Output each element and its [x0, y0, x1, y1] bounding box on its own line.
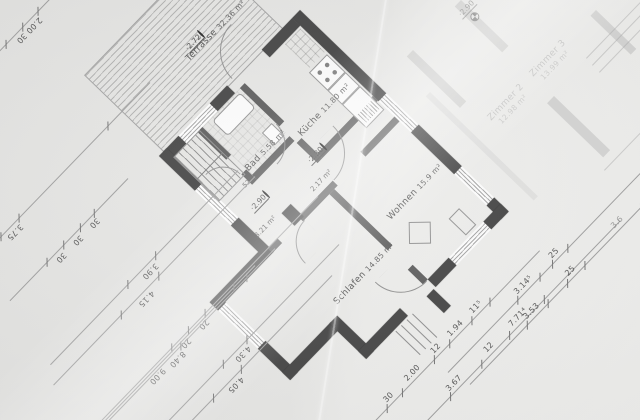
dimension-label: 30 — [15, 31, 29, 45]
stair-direction-line — [197, 153, 223, 180]
dimension-label: 11⁵ — [467, 299, 483, 316]
dimension-tick — [548, 299, 549, 308]
dimension-label: 30 — [54, 251, 68, 265]
dimension-label: 2.00 — [402, 363, 422, 383]
dimension-line: 3.14⁵ 25 — [448, 171, 640, 373]
dimension-label: 12 — [482, 340, 496, 354]
dimension-tick — [517, 296, 518, 305]
dimension-label: 1.94 — [445, 318, 465, 338]
dimension-tick — [402, 388, 403, 397]
dimension-tick — [107, 122, 108, 131]
dimension-label: 3.67 — [444, 373, 464, 393]
dimension-tick — [155, 251, 156, 260]
dimension-tick — [527, 321, 528, 330]
window — [454, 166, 494, 205]
entry-step-line — [407, 319, 432, 343]
dimension-label: 3.75 — [5, 222, 25, 242]
dimension-line: 9.00 — [25, 265, 255, 420]
dimension-label: 2.00 — [24, 16, 44, 36]
dimension-tick — [80, 223, 81, 232]
dimension-label: 3.53 — [521, 301, 541, 321]
dimension-tick — [6, 40, 7, 49]
partition-wall — [329, 189, 392, 250]
dimension-label: 4.05 — [226, 375, 246, 395]
dimension-tick — [434, 355, 435, 364]
dimension-line: 3.90 — [50, 170, 238, 365]
dimension-tick — [539, 273, 540, 282]
hall-area-label: 3.21 m² — [253, 214, 278, 239]
faint-wall-segment — [547, 96, 610, 157]
table-outline — [409, 222, 431, 244]
dimension-tick — [387, 404, 388, 413]
dimension-tick — [567, 244, 568, 253]
dimension-tick — [584, 261, 585, 270]
dimension-label: 30 — [88, 216, 102, 230]
dimension-tick — [509, 331, 510, 340]
dimension-line: 4.15 — [53, 176, 255, 385]
dimension-line: 2.00 30 — [0, 0, 62, 95]
entry-step-line — [412, 314, 437, 338]
floorplan-photo: Zimmer 3 13.99 m² Zimmer 2 12.98 m² 2.90… — [0, 0, 640, 420]
dimension-tick — [233, 283, 234, 292]
dimension-line: 3.67 12 7.71⁴ — [412, 220, 621, 420]
room-label-zimmer3: Zimmer 3 13.99 m² — [528, 38, 575, 86]
dimension-tick — [46, 258, 47, 267]
dimension-tick — [0, 232, 1, 241]
dimension-tick — [22, 23, 23, 32]
dimension-tick — [544, 295, 545, 304]
dimension-tick — [552, 260, 553, 269]
door-arc — [375, 256, 427, 308]
dimension-tick — [18, 214, 19, 223]
dimension-label: 3.14⁵ — [512, 273, 534, 295]
entry-stub-wall — [427, 289, 451, 313]
dimension-tick — [450, 392, 451, 401]
dimension-tick — [489, 298, 490, 307]
room-label-zimmer2: Zimmer 2 12.98 m² — [486, 82, 533, 130]
dimension-tick — [449, 339, 450, 348]
level-marker-hall: 2.90 — [248, 190, 271, 213]
faint-wall-segment — [590, 10, 636, 55]
wall-segment — [358, 308, 408, 359]
dimension-tick — [567, 279, 568, 288]
room-label-wohnen: Wohnen 15.9 m² — [386, 162, 445, 222]
dimension-tick — [63, 241, 64, 250]
dimension-tick — [471, 316, 472, 325]
dimension-label: 4.15 — [137, 289, 157, 309]
dimension-label: 30 — [71, 233, 85, 247]
dimension-line: 30 30 30 — [10, 178, 129, 301]
dimension-tick — [223, 360, 224, 369]
dimension-tick — [158, 272, 159, 281]
dimension-tick — [246, 335, 247, 344]
dimension-tick — [213, 394, 214, 403]
room-name: Wohnen — [386, 187, 420, 222]
dimension-tick — [121, 310, 122, 319]
dimension-label: 25 — [547, 246, 561, 260]
dimension-label: 30 — [381, 390, 395, 404]
room-area: 15.9 m² — [415, 162, 444, 191]
dimension-tick — [481, 360, 482, 369]
dimension-tick — [241, 365, 242, 374]
dimension-tick — [127, 280, 128, 289]
wall-segment — [428, 258, 457, 287]
dimension-tick — [37, 7, 38, 16]
entry-step-line — [401, 325, 426, 349]
entry-step-line — [395, 331, 420, 355]
room-name: Küche — [296, 111, 324, 139]
